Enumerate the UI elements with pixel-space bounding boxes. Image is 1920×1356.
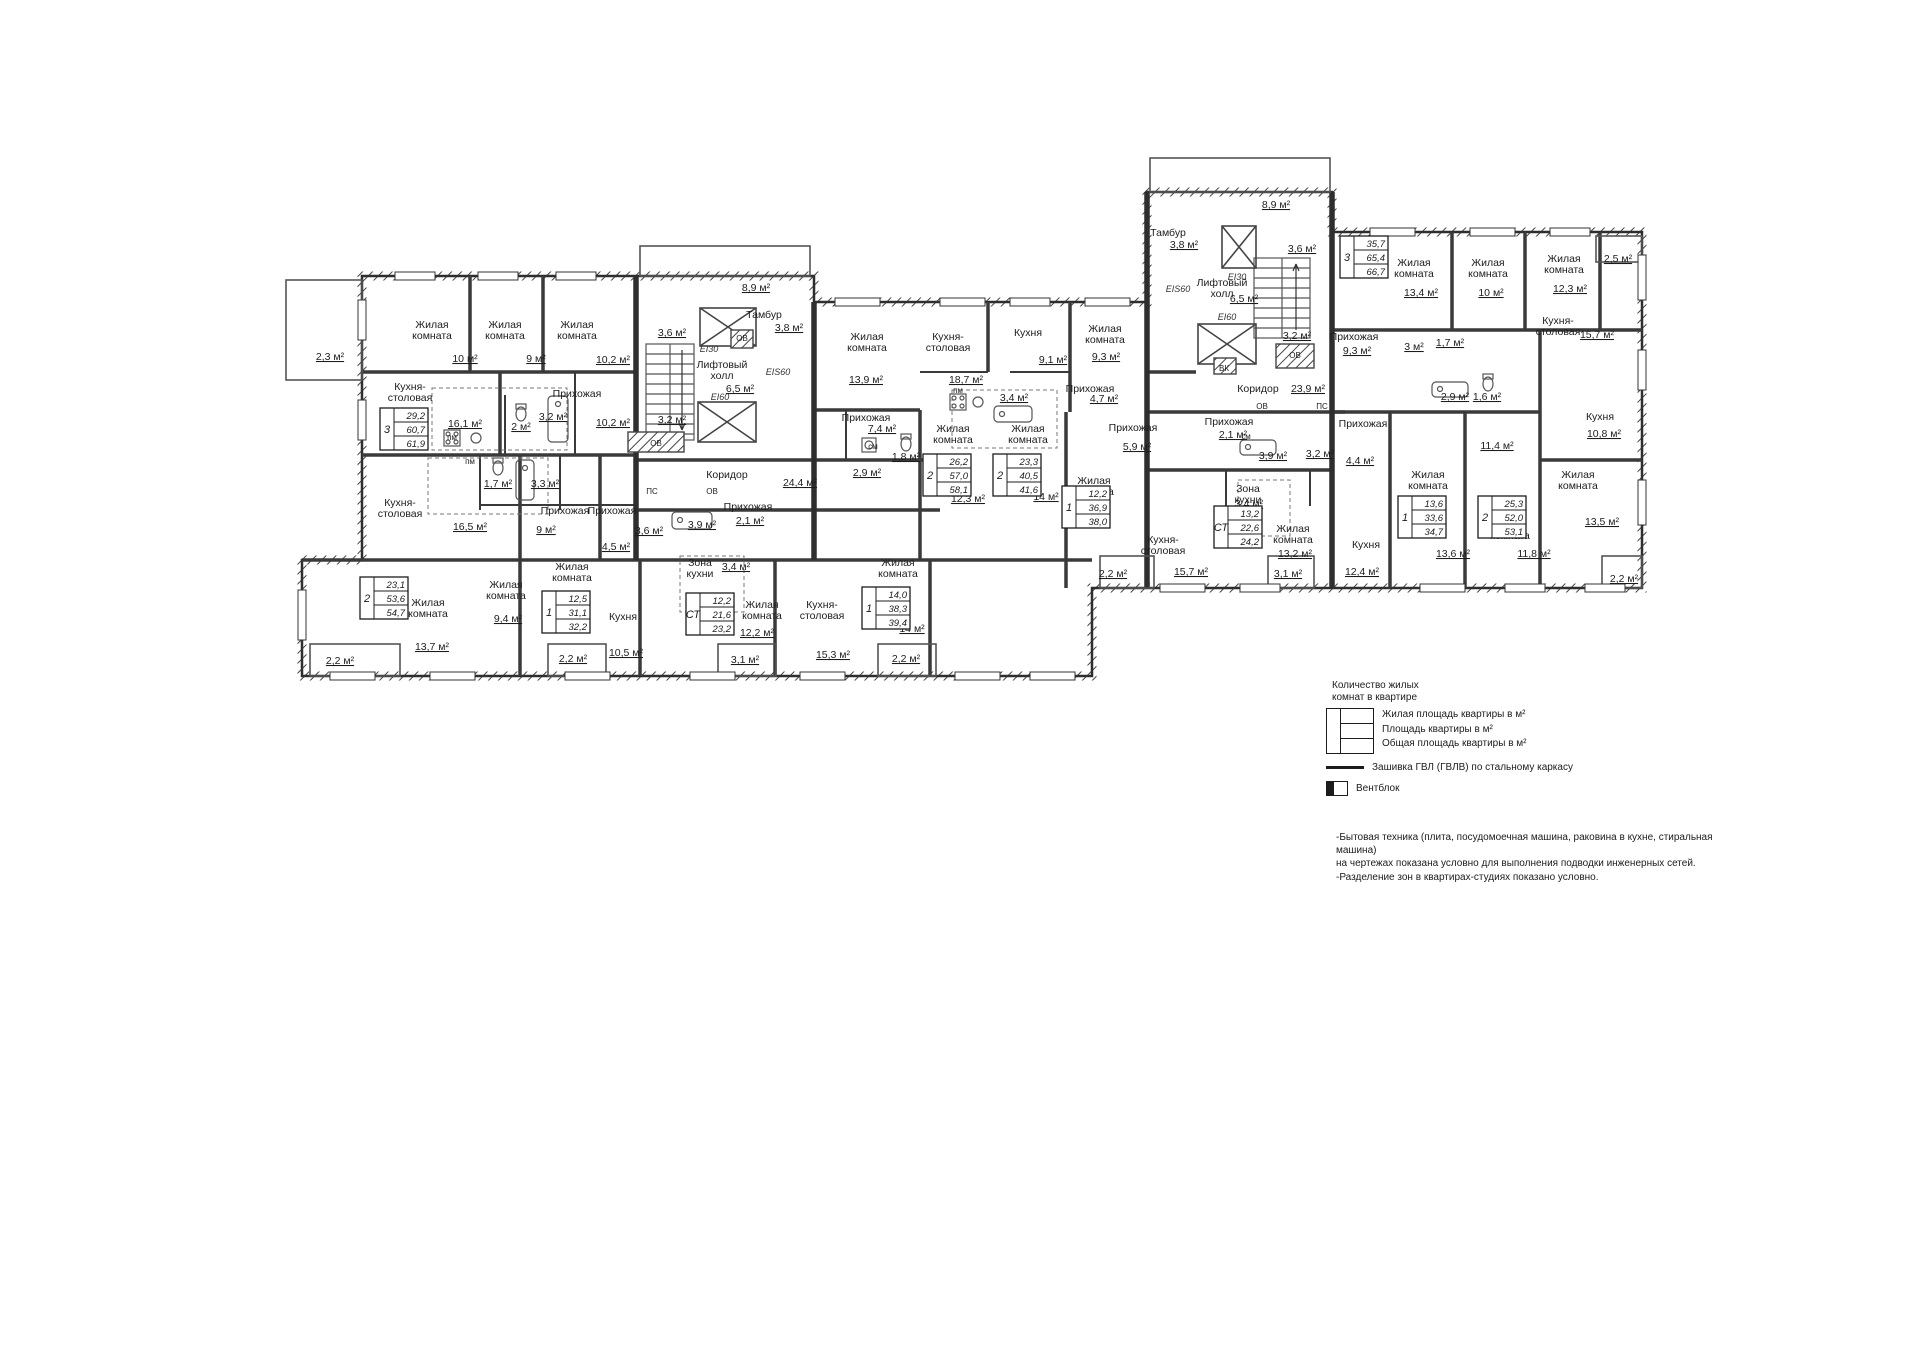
area-label: 1,6 м²: [1473, 391, 1502, 403]
apartment-table: 113,633,634,7: [1398, 496, 1446, 538]
tag-label: см: [868, 442, 878, 451]
table-total-area: 24,2: [1240, 537, 1260, 548]
table-room-count: 1: [1066, 502, 1072, 514]
table-living-area: 13,6: [1425, 499, 1444, 510]
stove-icon: [950, 394, 966, 410]
room-label: столовая: [388, 392, 433, 404]
room-label: столовая: [800, 610, 845, 622]
area-label: 2,9 м²: [1441, 391, 1470, 403]
legend-row-total: Общая площадь квартиры в м²: [1382, 737, 1527, 752]
room-label: комната: [847, 342, 887, 354]
table-room-count: СТ: [686, 609, 702, 621]
area-label: 10,5 м²: [609, 647, 644, 659]
area-label: 3,6 м²: [658, 327, 687, 339]
area-label: 6,5 м²: [1230, 293, 1259, 305]
table-room-count: 2: [363, 593, 370, 605]
area-label: 9,4 м²: [494, 613, 523, 625]
fire-rating-label: EI30: [1228, 272, 1247, 282]
area-label: 4,4 м²: [1346, 455, 1375, 467]
area-label: 16,5 м²: [453, 521, 488, 533]
area-label: 2,2 м²: [326, 655, 355, 667]
area-label: 3,3 м²: [531, 478, 560, 490]
apartment-table: 335,765,466,7: [1340, 236, 1388, 278]
table-total-area: 34,7: [1425, 527, 1444, 538]
note-line: -Бытовая техника (плита, посудомоечная м…: [1336, 832, 1736, 857]
notes: -Бытовая техника (плита, посудомоечная м…: [1336, 832, 1736, 885]
toilet-icon: [516, 404, 526, 421]
tag-label: ПС: [646, 487, 658, 496]
room-label: Прихожая: [588, 505, 637, 517]
table-total-area: 39,4: [889, 618, 908, 629]
fire-rating-label: EIS60: [1166, 284, 1191, 294]
legend-row-area: Площадь квартиры в м²: [1382, 723, 1527, 738]
apartment-table: 112,236,938,0: [1062, 486, 1110, 528]
table-apartment-area: 33,6: [1425, 513, 1444, 524]
table-apartment-area: 38,3: [889, 604, 908, 615]
table-total-area: 53,1: [1505, 527, 1524, 538]
table-apartment-area: 60,7: [407, 425, 426, 436]
table-apartment-area: 40,5: [1020, 471, 1039, 482]
apartment-table: СТ13,222,624,2: [1214, 506, 1262, 548]
area-label: 12,2 м²: [740, 627, 775, 639]
area-label: 13,6 м²: [1436, 548, 1471, 560]
toilet-icon: [493, 458, 503, 475]
area-label: 1,7 м²: [484, 478, 513, 490]
area-label: 11,8 м²: [1517, 548, 1551, 560]
area-label: 12,4 м²: [1345, 566, 1380, 578]
table-room-count: 1: [546, 607, 552, 619]
area-label: 10,8 м²: [1587, 428, 1622, 440]
area-label: 1,7 м²: [1436, 337, 1465, 349]
area-label: 13,9 м²: [849, 374, 884, 386]
room-label: Прихожая: [541, 505, 590, 517]
room-label: комната: [1273, 534, 1313, 546]
table-room-count: 2: [1481, 512, 1488, 524]
tag-label: см: [1241, 432, 1251, 441]
note-line: -Разделение зон в квартирах-студиях пока…: [1336, 872, 1736, 885]
area-label: 3,2 м²: [658, 414, 687, 426]
tag-label: ОВ: [650, 439, 662, 448]
table-living-area: 12,2: [1089, 489, 1108, 500]
area-label: 3,9 м²: [688, 519, 717, 531]
room-label: комната: [408, 608, 448, 620]
room-label: комната: [552, 572, 592, 584]
table-room-count: 2: [926, 470, 933, 482]
legend: Количество жилых комнат в квартире Жилая…: [1326, 680, 1666, 796]
table-room-count: 3: [384, 424, 391, 436]
tag-label: ОВ: [1256, 402, 1268, 411]
table-total-area: 58,1: [950, 485, 969, 496]
area-label: 2,3 м²: [316, 351, 345, 363]
table-apartment-area: 57,0: [950, 471, 969, 482]
area-label: 23,9 м²: [1291, 383, 1326, 395]
area-label: 11,4 м²: [1480, 440, 1514, 452]
tag-label: пм: [953, 386, 963, 395]
table-living-area: 35,7: [1367, 239, 1386, 250]
area-label: 4,5 м²: [602, 541, 631, 553]
stairs-core-b: [1254, 258, 1310, 338]
table-living-area: 23,1: [386, 580, 406, 591]
room-label: комната: [1468, 268, 1508, 280]
area-label: 13,5 м²: [1585, 516, 1620, 528]
room-label: кухни: [687, 568, 714, 580]
fire-rating-label: EIS60: [766, 367, 791, 377]
table-living-area: 23,3: [1019, 457, 1039, 468]
hatch-label: Зашивка ГВЛ (ГВЛВ) по стальному каркасу: [1372, 762, 1573, 773]
apartment-table: 226,257,058,1: [923, 454, 971, 496]
tag-label: ОВ: [736, 334, 748, 343]
area-label: 3,2 м²: [539, 411, 568, 423]
table-total-area: 61,9: [407, 439, 426, 450]
area-label: 2 м²: [511, 421, 531, 433]
tag-label: пм: [465, 457, 475, 466]
legend-row-living: Жилая площадь квартиры в м²: [1382, 708, 1527, 723]
room-label: комната: [1408, 480, 1448, 492]
room-label: комната: [1085, 334, 1125, 346]
room-label: холл: [711, 370, 734, 382]
table-apartment-area: 21,6: [712, 610, 732, 621]
room-label: столовая: [378, 508, 423, 520]
apartment-table: 223,340,541,6: [993, 454, 1041, 496]
room-label: столовая: [1536, 326, 1581, 338]
area-label: 9,3 м²: [1343, 345, 1372, 357]
legend-sample-table: [1326, 708, 1374, 754]
apartment-table: 223,153,654,7: [360, 577, 408, 619]
area-label: 2,9 м²: [853, 467, 882, 479]
elevator-icon: [698, 402, 756, 442]
area-label: 15,3 м²: [816, 649, 851, 661]
tag-label: пм: [447, 433, 457, 442]
area-label: 2,2 м²: [1610, 573, 1639, 585]
area-label: 15,7 м²: [1174, 566, 1209, 578]
floor-plan-drawing: ЖилаякомнатаЖилаякомнатаЖилаякомнатаКухн…: [0, 0, 1920, 1356]
room-label: Тамбур: [746, 309, 782, 321]
toilet-icon: [1483, 374, 1493, 391]
area-label: 15,7 м²: [1580, 329, 1615, 341]
room-label: комната: [1558, 480, 1598, 492]
fire-rating-label: EI30: [700, 344, 719, 354]
room-label: столовая: [1141, 545, 1186, 557]
area-label: 2,5 м²: [1604, 253, 1633, 265]
area-label: 2,2 м²: [559, 653, 588, 665]
sink-icon: [471, 433, 481, 443]
apartment-table: 114,038,339,4: [862, 587, 910, 629]
area-label: 3,2 м²: [1283, 330, 1312, 342]
table-room-count: 2: [996, 470, 1003, 482]
area-label: 13,2 м²: [1278, 548, 1313, 560]
apartment-table: СТ12,221,623,2: [686, 593, 734, 635]
table-living-area: 12,5: [569, 594, 588, 605]
apartment-table: 225,352,053,1: [1478, 496, 1526, 538]
area-label: 6,5 м²: [726, 383, 755, 395]
table-total-area: 23,2: [712, 624, 732, 635]
area-label: 2,2 м²: [892, 653, 921, 665]
area-label: 2,1 м²: [736, 515, 765, 527]
tag-label: ПС: [1316, 402, 1328, 411]
area-label: 10,2 м²: [596, 354, 631, 366]
apartment-table: 329,260,761,9: [380, 408, 428, 450]
hatch-line-symbol: [1326, 766, 1364, 769]
area-label: 9 м²: [526, 353, 546, 365]
table-apartment-area: 52,0: [1505, 513, 1524, 524]
room-label: комната: [1394, 268, 1434, 280]
area-label: 3,9 м²: [1259, 450, 1288, 462]
table-total-area: 41,6: [1020, 485, 1039, 496]
room-label: Прихожая: [553, 388, 602, 400]
toilet-icon: [901, 434, 911, 451]
room-label: Кухня: [1014, 327, 1042, 339]
room-label: Кухня: [1352, 539, 1380, 551]
room-label: Прихожая: [724, 501, 773, 513]
table-living-area: 13,2: [1241, 509, 1260, 520]
table-apartment-area: 53,6: [387, 594, 406, 605]
room-label: Тамбур: [1150, 227, 1186, 239]
table-apartment-area: 36,9: [1089, 503, 1108, 514]
elevator-icon: [1222, 226, 1256, 268]
area-label: 3,1 м²: [1274, 568, 1303, 580]
area-label: 10 м²: [1478, 287, 1504, 299]
table-living-area: 14,0: [889, 590, 908, 601]
tag-label: ОВ: [706, 487, 718, 496]
area-label: 3 м²: [1404, 341, 1424, 353]
vent-label: Вентблок: [1356, 783, 1400, 794]
area-label: 18,7 м²: [949, 374, 984, 386]
room-label: Кухня: [1586, 411, 1614, 423]
table-living-area: 26,2: [949, 457, 969, 468]
area-label: 4,7 м²: [1090, 393, 1119, 405]
room-label: Прихожая: [1339, 418, 1388, 430]
area-label: 2,2 м²: [1099, 568, 1128, 580]
room-label: Коридор: [706, 469, 748, 481]
fire-rating-label: EI60: [711, 392, 730, 402]
area-label: 3,6 м²: [1288, 243, 1317, 255]
room-label: комната: [557, 330, 597, 342]
table-total-area: 54,7: [387, 608, 406, 619]
bathtub-icon: [994, 406, 1032, 422]
room-label: Прихожая: [1330, 331, 1379, 343]
area-label: 9,3 м²: [1092, 351, 1121, 363]
area-label: 5,9 м²: [1123, 441, 1152, 453]
room-label: Коридор: [1237, 383, 1279, 395]
table-living-area: 25,3: [1504, 499, 1524, 510]
area-label: 10,2 м²: [596, 417, 631, 429]
room-label: комната: [878, 568, 918, 580]
fire-rating-label: EI60: [1218, 312, 1237, 322]
tag-label: ВК: [1219, 364, 1229, 373]
room-label: комната: [1544, 264, 1584, 276]
room-label: комната: [485, 330, 525, 342]
room-label: комната: [486, 590, 526, 602]
table-total-area: 32,2: [569, 622, 588, 633]
room-label: Прихожая: [1109, 422, 1158, 434]
room-label: комната: [742, 610, 782, 622]
room-label: столовая: [926, 342, 971, 354]
area-label: 3,4 м²: [722, 561, 751, 573]
area-label: 7,4 м²: [868, 423, 897, 435]
area-label: 13,4 м²: [1404, 287, 1439, 299]
area-label: 3,1 м²: [731, 654, 760, 666]
table-apartment-area: 22,6: [1240, 523, 1260, 534]
area-label: 3,6 м²: [635, 525, 664, 537]
room-label: Кухня: [609, 611, 637, 623]
room-label: Прихожая: [1205, 416, 1254, 428]
room-label: комната: [933, 434, 973, 446]
area-label: 24,4 м²: [783, 477, 818, 489]
area-label: 3,4 м²: [1000, 392, 1029, 404]
table-apartment-area: 65,4: [1367, 253, 1386, 264]
table-room-count: 1: [866, 603, 872, 615]
room-label: комната: [1008, 434, 1048, 446]
legend-title: Количество жилых комнат в квартире: [1332, 680, 1666, 704]
table-living-area: 29,2: [406, 411, 426, 422]
table-living-area: 12,2: [713, 596, 732, 607]
area-label: 10 м²: [452, 353, 478, 365]
note-line: на чертежах показана условно для выполне…: [1336, 858, 1736, 871]
area-label: 9 м²: [536, 524, 556, 536]
table-room-count: СТ: [1214, 522, 1230, 534]
table-total-area: 38,0: [1089, 517, 1108, 528]
room-label: комната: [412, 330, 452, 342]
area-label: 8,9 м²: [742, 282, 771, 294]
table-room-count: 1: [1402, 512, 1408, 524]
table-apartment-area: 31,1: [569, 608, 588, 619]
area-label: 3,8 м²: [775, 322, 804, 334]
area-label: 13,7 м²: [415, 641, 450, 653]
table-room-count: 3: [1344, 252, 1351, 264]
area-label: 3,8 м²: [1170, 239, 1199, 251]
area-label: 1,8 м²: [892, 451, 921, 463]
area-label: 3,2 м²: [1306, 448, 1335, 460]
area-label: 8,9 м²: [1262, 199, 1291, 211]
elevator-shafts: [698, 226, 1256, 442]
ventblock-symbol: [1326, 781, 1348, 796]
apartment-table: 112,531,132,2: [542, 591, 590, 633]
floor-plan-sheet: ЖилаякомнатаЖилаякомнатаЖилаякомнатаКухн…: [0, 0, 1920, 1356]
table-total-area: 66,7: [1367, 267, 1386, 278]
area-label: 16,1 м²: [448, 418, 483, 430]
sink-icon: [973, 397, 983, 407]
tag-label: ОВ: [1289, 351, 1301, 360]
area-label: 9,1 м²: [1039, 354, 1068, 366]
area-label: 12,3 м²: [1553, 283, 1588, 295]
